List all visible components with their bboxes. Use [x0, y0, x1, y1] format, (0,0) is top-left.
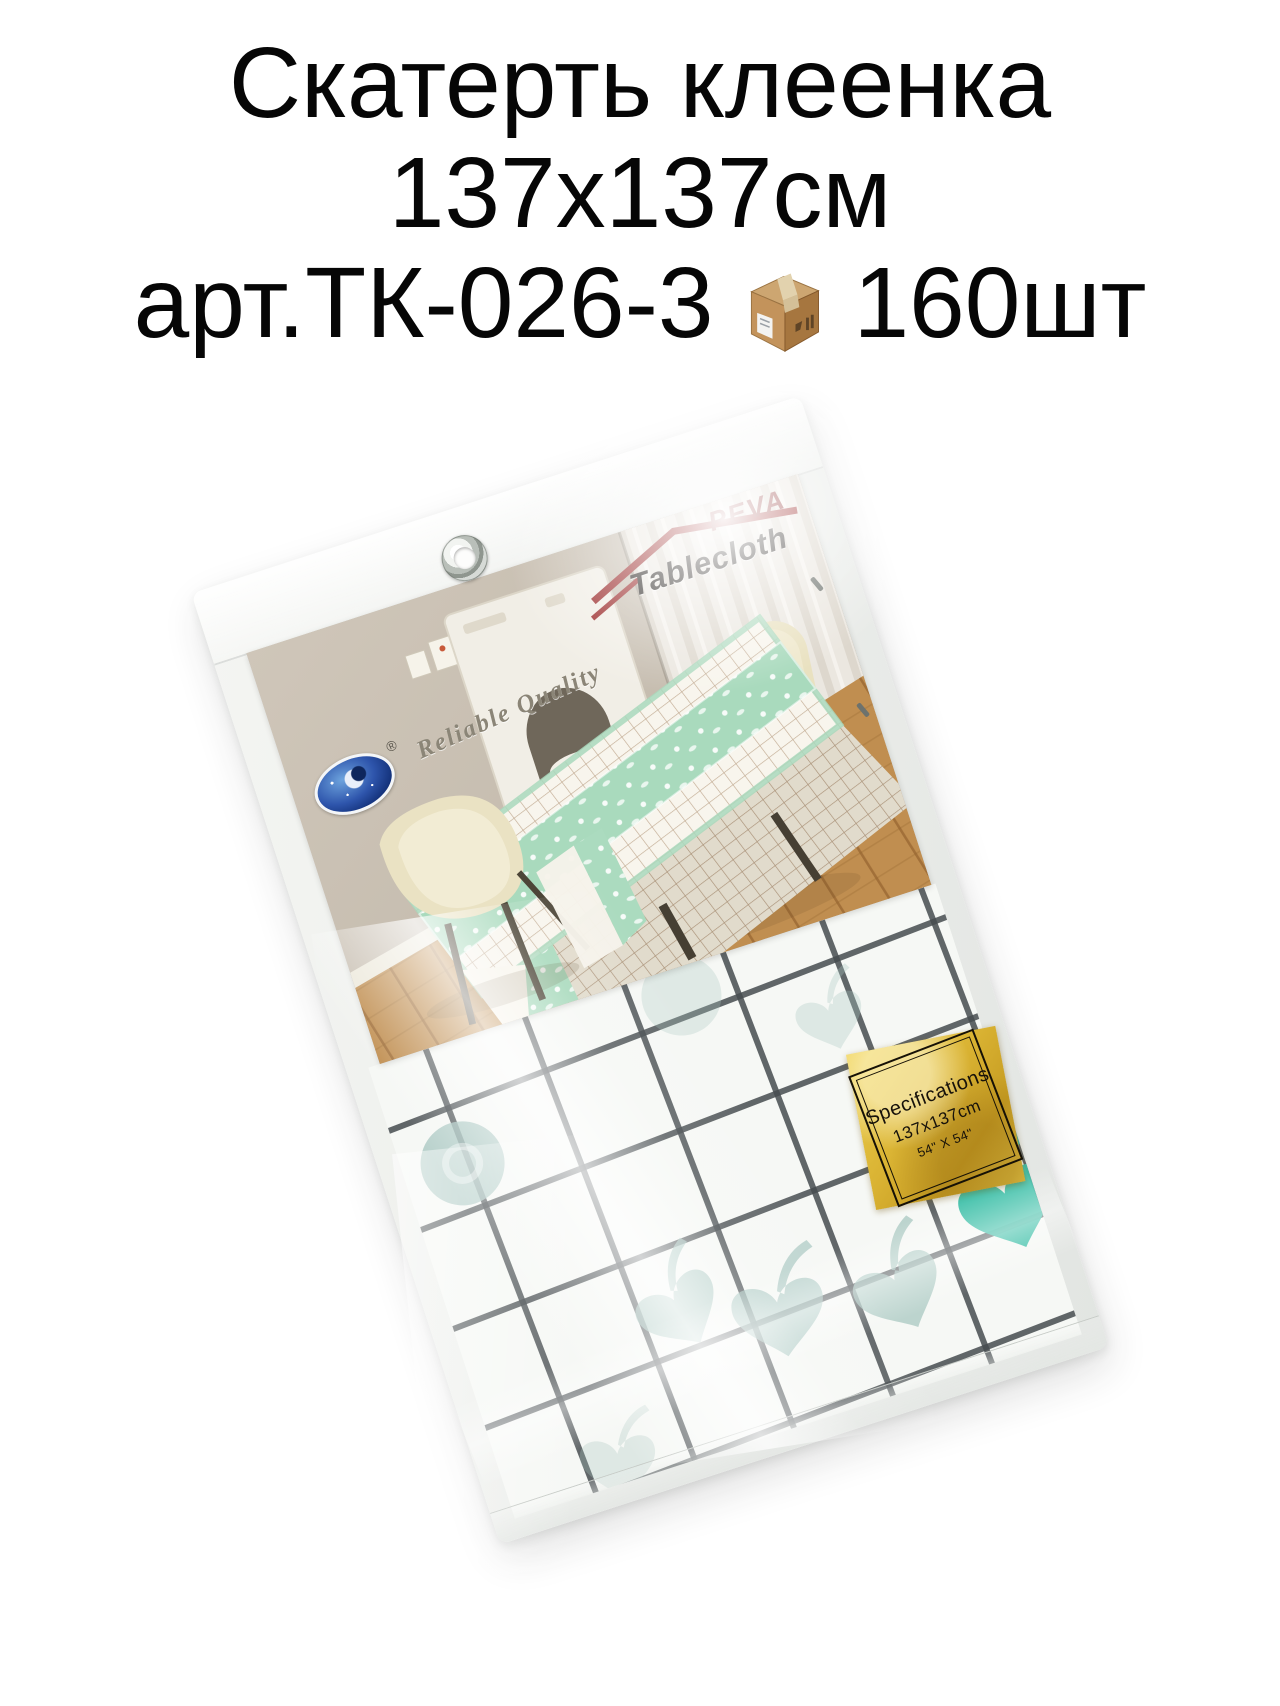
title-article: арт.ТК-026-3 — [134, 248, 714, 358]
product-title: Скатерть клеенка 137х137см арт.ТК-026-3 … — [0, 28, 1280, 358]
title-line-1: Скатерть клеенка — [0, 28, 1280, 138]
title-line-3: арт.ТК-026-3 160шт — [0, 248, 1280, 358]
package-box-icon — [738, 263, 830, 355]
sticker-size-cm: 137x137cm — [890, 1096, 983, 1148]
registered-trademark: ® — [384, 736, 400, 755]
title-count: 160шт — [854, 248, 1147, 358]
specifications-sticker: Specifications 137x137cm 54" X 54" — [846, 1026, 1025, 1210]
tablecloth-package: PEVA Tablecloth ® Reliable Quality Speci… — [191, 396, 1109, 1545]
sticker-size-inch: 54" X 54" — [915, 1125, 975, 1160]
sticker-title: Specifications — [863, 1063, 993, 1131]
page: { "title": { "line1": "Скатерть клеенка"… — [0, 0, 1280, 1706]
title-line-2: 137х137см — [0, 138, 1280, 248]
sticker-frame: Specifications 137x137cm 54" X 54" — [848, 1029, 1023, 1208]
